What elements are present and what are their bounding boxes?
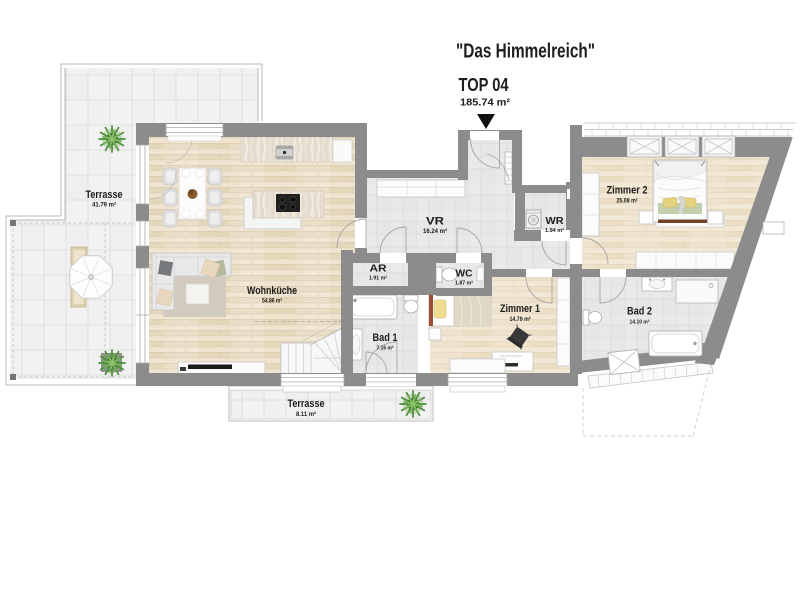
svg-text:VR: VR xyxy=(426,216,444,228)
svg-text:16.24 m²: 16.24 m² xyxy=(423,228,447,235)
svg-text:41.79 m²: 41.79 m² xyxy=(92,202,116,209)
svg-text:54.86 m²: 54.86 m² xyxy=(262,298,282,305)
svg-text:Terrasse: Terrasse xyxy=(86,189,123,201)
svg-text:185.74 m²: 185.74 m² xyxy=(460,98,511,109)
svg-text:Terrasse: Terrasse xyxy=(288,398,325,410)
svg-text:14.10 m²: 14.10 m² xyxy=(630,319,650,326)
svg-text:1.87 m²: 1.87 m² xyxy=(455,280,473,287)
svg-text:25.08 m²: 25.08 m² xyxy=(617,198,638,205)
svg-text:8.11 m²: 8.11 m² xyxy=(296,411,316,418)
svg-text:Zimmer 1: Zimmer 1 xyxy=(500,303,540,315)
svg-text:Bad 1: Bad 1 xyxy=(373,332,398,344)
svg-text:TOP 04: TOP 04 xyxy=(459,75,509,95)
svg-text:WR: WR xyxy=(546,215,564,227)
svg-text:AR: AR xyxy=(370,263,387,275)
svg-text:Wohnküche: Wohnküche xyxy=(247,285,297,297)
svg-text:1.91 m²: 1.91 m² xyxy=(369,275,387,282)
svg-text:14.79 m²: 14.79 m² xyxy=(510,316,531,323)
svg-text:Bad 2: Bad 2 xyxy=(627,306,652,318)
svg-text:"Das Himmelreich": "Das Himmelreich" xyxy=(456,41,595,63)
svg-text:WC: WC xyxy=(456,268,473,280)
svg-text:Zimmer 2: Zimmer 2 xyxy=(607,185,648,197)
svg-text:7.16 m²: 7.16 m² xyxy=(377,345,394,352)
svg-text:1.94 m²: 1.94 m² xyxy=(545,227,564,234)
